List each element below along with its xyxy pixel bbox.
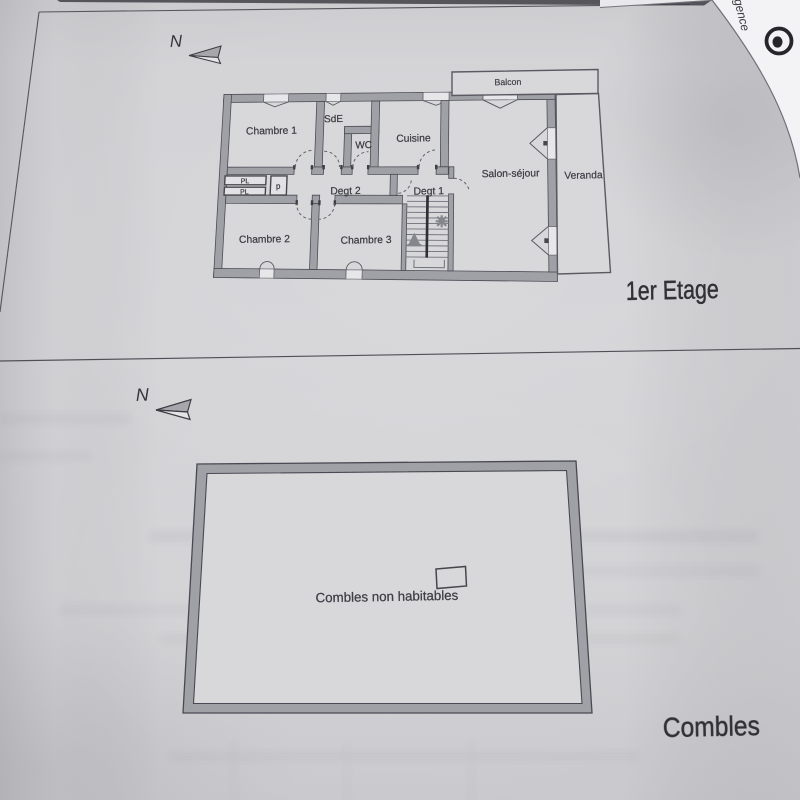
- svg-text:N: N: [169, 32, 183, 51]
- svg-text:Salon-séjour: Salon-séjour: [482, 168, 541, 180]
- svg-text:Degt 2: Degt 2: [330, 186, 361, 197]
- svg-text:Chambre 1: Chambre 1: [246, 126, 297, 138]
- svg-text:Veranda: Veranda: [564, 170, 603, 182]
- svg-text:Balcon: Balcon: [494, 77, 521, 87]
- svg-text:Chambre 3: Chambre 3: [341, 235, 392, 247]
- svg-text:1er Etage: 1er Etage: [625, 274, 719, 306]
- svg-text:Chambre 2: Chambre 2: [239, 234, 290, 246]
- svg-text:Combles non habitables: Combles non habitables: [315, 588, 458, 605]
- svg-text:p: p: [276, 182, 281, 191]
- svg-text:Cuisine: Cuisine: [396, 133, 431, 145]
- svg-text:SdE: SdE: [324, 114, 343, 125]
- svg-text:WC: WC: [355, 140, 372, 151]
- svg-text:PL: PL: [241, 178, 250, 185]
- svg-text:N: N: [135, 385, 150, 405]
- svg-text:PL: PL: [240, 189, 249, 196]
- svg-text:Degt 1: Degt 1: [414, 186, 445, 197]
- svg-text:Combles: Combles: [662, 710, 760, 743]
